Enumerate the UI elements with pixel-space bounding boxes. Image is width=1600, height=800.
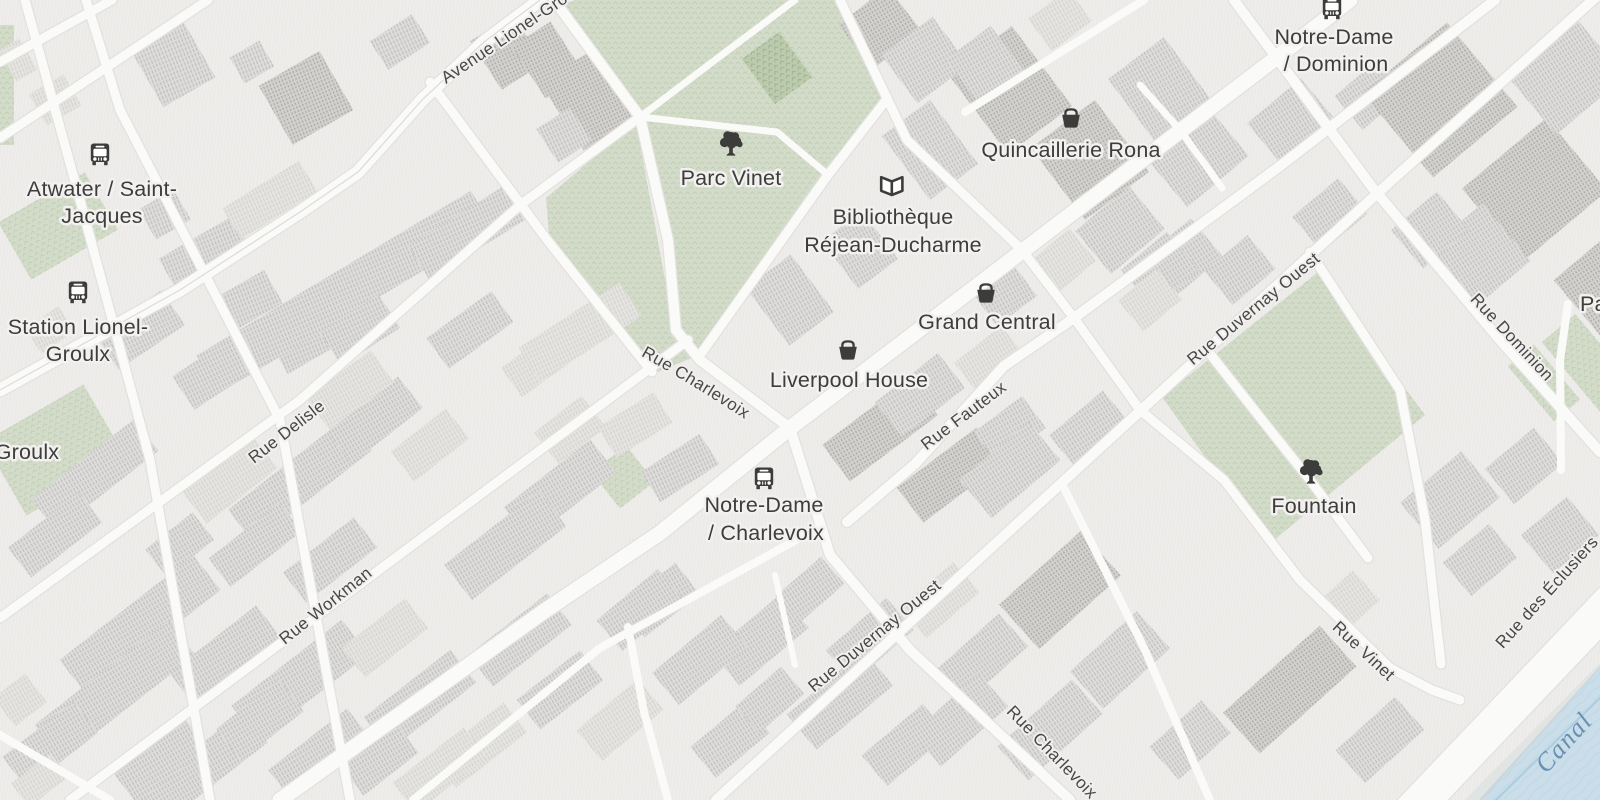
svg-text:Réjean-Ducharme: Réjean-Ducharme: [804, 233, 981, 257]
svg-text:Jacques: Jacques: [61, 204, 142, 228]
svg-text:Fountain: Fountain: [1271, 494, 1356, 518]
svg-text:Quincaillerie Rona: Quincaillerie Rona: [981, 138, 1160, 162]
svg-text:Groulx: Groulx: [0, 440, 59, 464]
svg-text:Parc Vinet: Parc Vinet: [681, 166, 782, 190]
svg-text:Groulx: Groulx: [46, 342, 111, 366]
svg-text:Parc: Parc: [1580, 292, 1600, 316]
svg-text:Notre-Dame: Notre-Dame: [704, 493, 823, 517]
svg-text:Notre-Dame: Notre-Dame: [1274, 25, 1393, 49]
svg-text:Atwater / Saint-: Atwater / Saint-: [27, 177, 177, 201]
svg-text:/ Dominion: / Dominion: [1284, 52, 1389, 76]
svg-text:Station Lionel-: Station Lionel-: [8, 315, 148, 339]
svg-text:Liverpool House: Liverpool House: [770, 368, 928, 392]
svg-text:Bibliothèque: Bibliothèque: [833, 205, 954, 229]
svg-text:Grand Central: Grand Central: [918, 310, 1056, 334]
svg-text:/ Charlevoix: / Charlevoix: [708, 521, 824, 545]
